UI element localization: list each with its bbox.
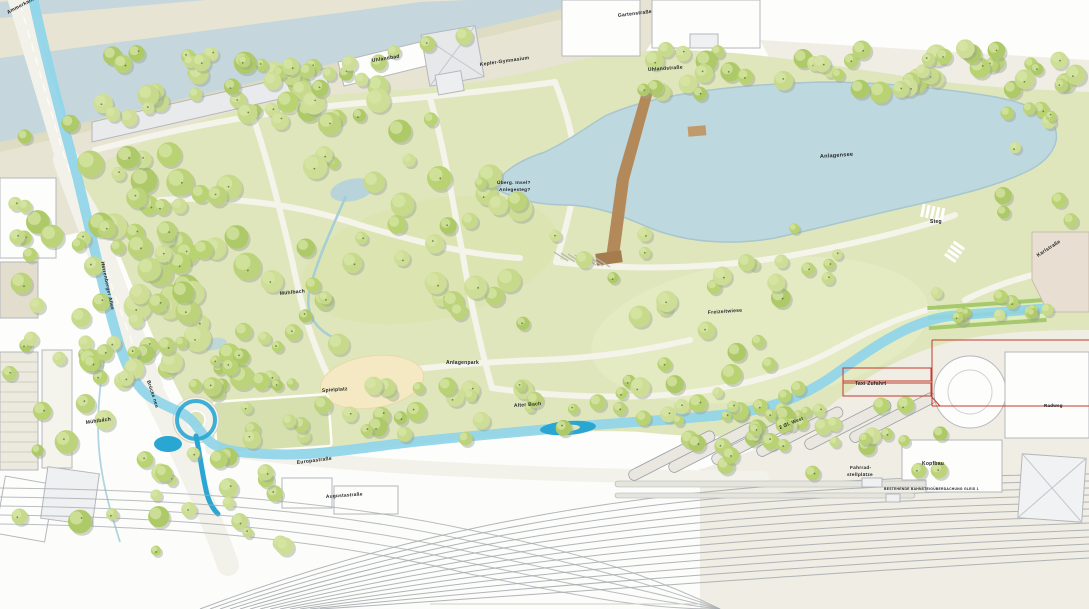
map-label-kopfbau: Kopfbau <box>922 461 944 467</box>
map-label-radweg: Radweg <box>1044 403 1063 408</box>
map-label-steg: Steg <box>930 219 942 225</box>
map-label-bahnsteig-caption: BESTEHENDE BAHNSTEIGÜBERDACHUNG GLEIS 1 <box>884 486 979 491</box>
site-plan-map[interactable]: AmmerkanalUhlandbadKepler-GymnasiumGarte… <box>0 0 1089 609</box>
sports-field <box>213 394 331 454</box>
map-label-annotation-anlegesteg: Anlegesteg? <box>499 187 531 193</box>
map-label-annotation-uebergang: Überg. Insel? <box>497 179 531 186</box>
map-label-taxi-zufahrt: Taxi Zufahrt <box>855 381 886 387</box>
map-label-anlagenpark: Anlagenpark <box>446 360 479 366</box>
map-label-fahrrad-line1: Fahrrad- <box>850 465 872 471</box>
map-label-fahrrad-line2: stellplätze <box>847 472 873 478</box>
